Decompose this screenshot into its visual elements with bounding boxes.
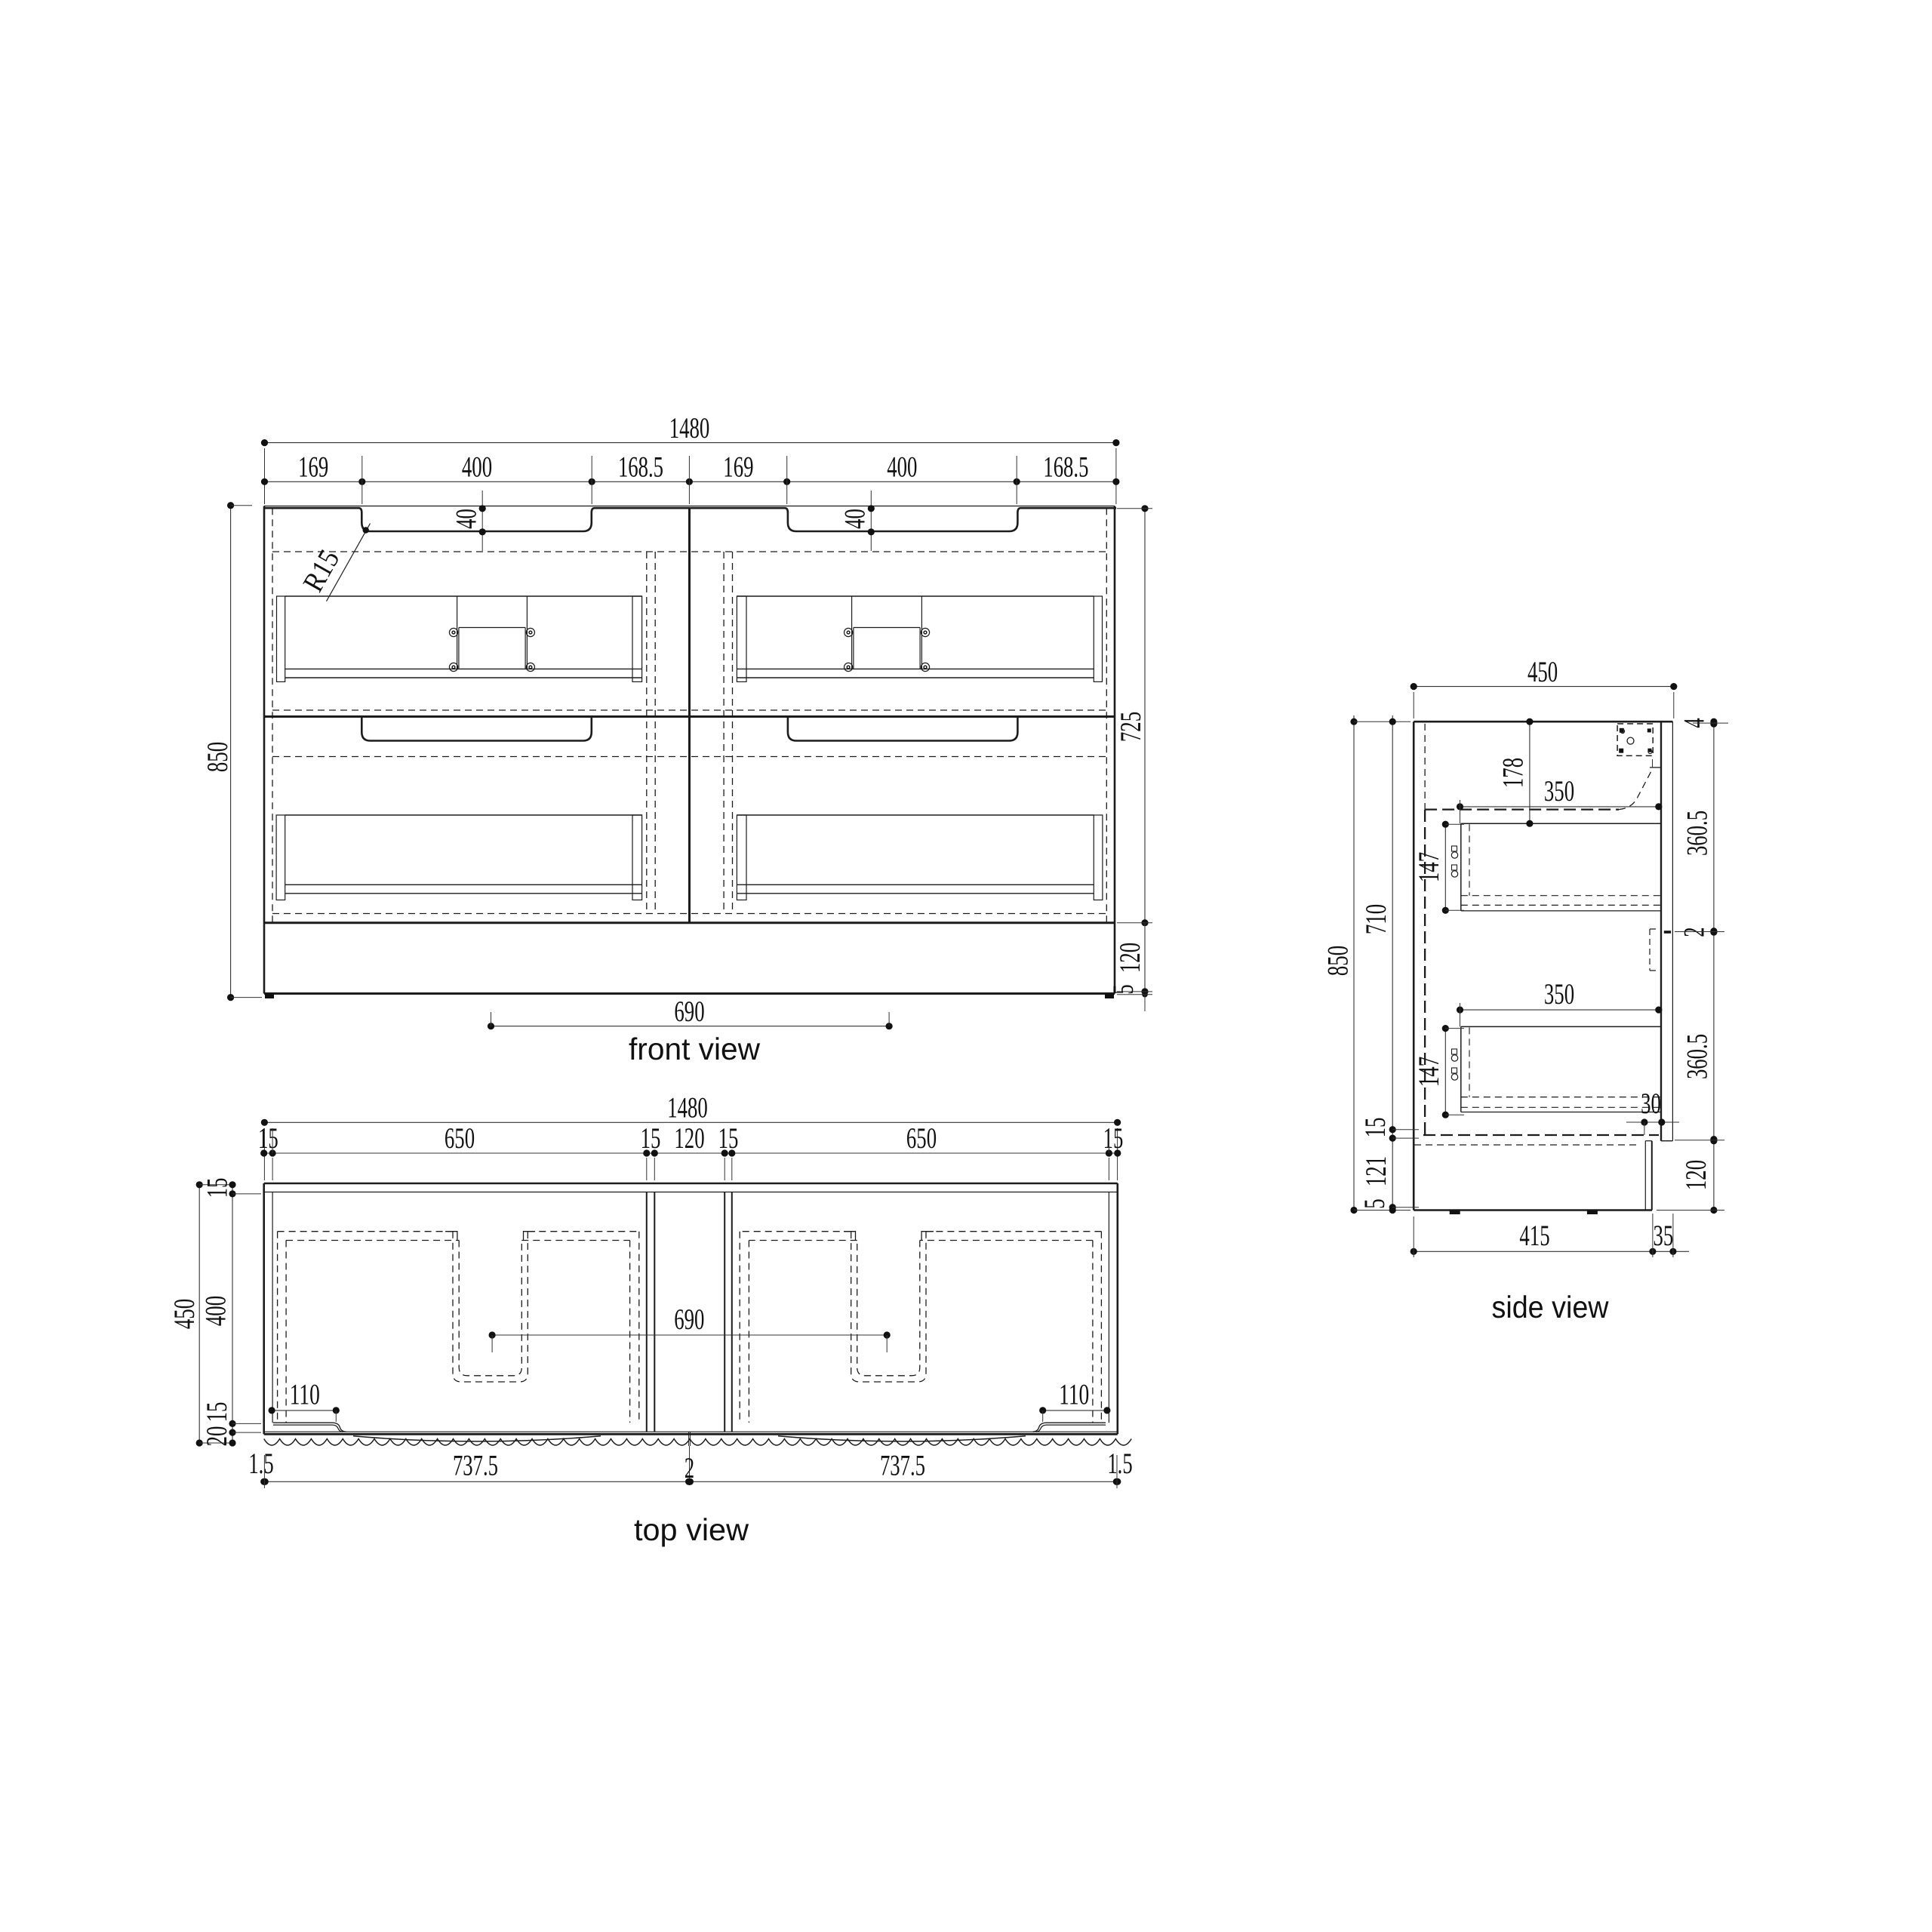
svg-text:1.5: 1.5 <box>248 1447 273 1480</box>
svg-text:15: 15 <box>1359 1118 1392 1138</box>
svg-text:400: 400 <box>462 451 492 483</box>
svg-text:350: 350 <box>1544 775 1574 808</box>
svg-text:40: 40 <box>450 509 482 529</box>
svg-text:169: 169 <box>298 451 328 483</box>
svg-text:30: 30 <box>1641 1088 1661 1120</box>
svg-text:737.5: 737.5 <box>880 1449 925 1481</box>
svg-text:169: 169 <box>723 451 753 483</box>
svg-text:1480: 1480 <box>667 1091 708 1124</box>
svg-text:850: 850 <box>1321 946 1354 976</box>
svg-text:15: 15 <box>201 1178 233 1198</box>
svg-text:1480: 1480 <box>669 412 710 445</box>
svg-text:450: 450 <box>168 1299 201 1329</box>
svg-text:690: 690 <box>674 1303 704 1336</box>
svg-text:side view: side view <box>1492 1290 1609 1324</box>
svg-text:360.5: 360.5 <box>1681 811 1713 856</box>
svg-text:120: 120 <box>1114 943 1146 973</box>
svg-text:40: 40 <box>838 509 871 529</box>
svg-text:710: 710 <box>1360 904 1392 934</box>
svg-text:850: 850 <box>202 742 234 772</box>
svg-text:110: 110 <box>290 1378 320 1411</box>
svg-text:360.5: 360.5 <box>1681 1034 1713 1079</box>
svg-text:110: 110 <box>1059 1378 1089 1411</box>
svg-text:147: 147 <box>1413 1057 1445 1087</box>
svg-text:15: 15 <box>258 1122 278 1155</box>
svg-text:20: 20 <box>201 1426 233 1447</box>
svg-text:15: 15 <box>718 1122 739 1155</box>
svg-text:2: 2 <box>685 1452 694 1484</box>
svg-text:front view: front view <box>629 1032 760 1066</box>
svg-text:178: 178 <box>1497 758 1529 788</box>
svg-text:top view: top view <box>634 1512 749 1547</box>
svg-text:650: 650 <box>906 1122 937 1155</box>
svg-text:5: 5 <box>1358 1198 1391 1208</box>
svg-text:725: 725 <box>1115 712 1147 742</box>
svg-text:120: 120 <box>1680 1160 1712 1190</box>
svg-text:15: 15 <box>201 1402 233 1423</box>
svg-text:415: 415 <box>1519 1220 1549 1252</box>
svg-text:121: 121 <box>1360 1156 1392 1186</box>
svg-text:650: 650 <box>445 1122 475 1155</box>
svg-text:450: 450 <box>1527 656 1558 688</box>
svg-text:400: 400 <box>199 1296 232 1326</box>
svg-text:147: 147 <box>1413 852 1445 882</box>
svg-text:15: 15 <box>1103 1122 1124 1155</box>
svg-text:350: 350 <box>1544 978 1574 1011</box>
svg-text:168.5: 168.5 <box>618 451 663 483</box>
svg-text:737.5: 737.5 <box>453 1449 498 1481</box>
svg-text:5: 5 <box>1107 984 1140 994</box>
svg-text:400: 400 <box>887 451 917 483</box>
svg-text:35: 35 <box>1654 1220 1674 1252</box>
svg-text:690: 690 <box>674 995 704 1028</box>
svg-text:120: 120 <box>674 1122 704 1155</box>
svg-text:168.5: 168.5 <box>1043 451 1088 483</box>
svg-text:15: 15 <box>641 1122 661 1155</box>
svg-text:1.5: 1.5 <box>1107 1447 1132 1480</box>
